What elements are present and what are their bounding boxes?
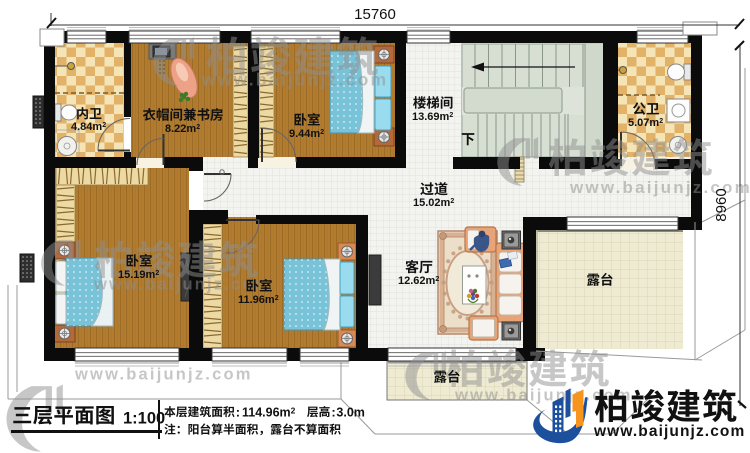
svg-text:www.baijunjz.com: www.baijunjz.com [201,69,388,89]
svg-text:15.19m2: 15.19m2 [118,269,159,281]
svg-text:15.02m2: 15.02m2 [413,197,454,209]
svg-text:9.44m2: 9.44m2 [289,128,324,140]
svg-text:15760: 15760 [354,6,396,23]
svg-text:11.96m2: 11.96m2 [238,294,279,306]
svg-text:13.69m2: 13.69m2 [412,111,453,123]
svg-text:5.07m2: 5.07m2 [628,117,663,129]
svg-text:3.0m: 3.0m [336,406,365,420]
svg-text:12.62m2: 12.62m2 [398,275,439,287]
svg-text:8.22m2: 8.22m2 [165,123,200,135]
svg-text:www.baijunjz.com: www.baijunjz.com [74,366,253,384]
svg-text:www.baijunjz.com: www.baijunjz.com [593,423,745,440]
svg-text:8960: 8960 [713,188,730,221]
svg-text:www.baijunjz.com: www.baijunjz.com [454,387,633,405]
svg-text:4.84m2: 4.84m2 [71,121,106,133]
svg-text::: : [331,405,335,420]
svg-text:114.96m2: 114.96m2 [242,406,296,420]
svg-text::: : [236,405,240,420]
